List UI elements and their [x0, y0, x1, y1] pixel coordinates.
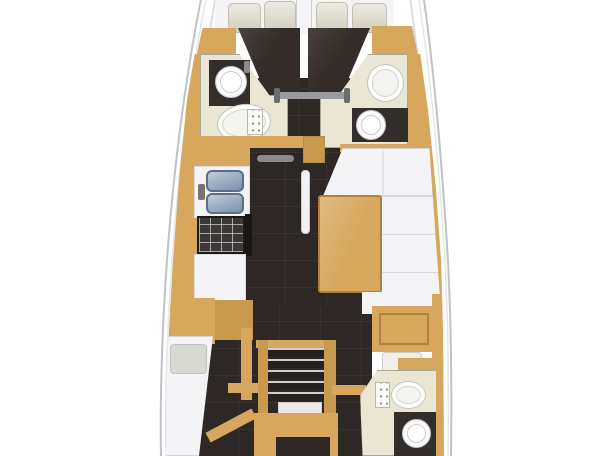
starboard-door-threshold	[332, 385, 366, 395]
companionway-step	[268, 381, 324, 390]
galley-faucet	[198, 184, 205, 200]
floor-hatch	[257, 155, 294, 162]
companionway-step	[268, 359, 324, 368]
stove-fiddle-rail	[245, 214, 252, 256]
saloon-table	[318, 195, 382, 293]
galley-counter-forward	[172, 146, 250, 168]
companionway-rail-port	[258, 340, 268, 418]
port-door-threshold	[228, 383, 262, 393]
companionway-step	[268, 348, 324, 357]
port-head-faucet	[244, 61, 250, 73]
bulkhead-cabinet	[303, 136, 325, 163]
port-head-sink	[215, 66, 247, 98]
galley-stove	[197, 216, 245, 254]
aft-berth-pillow	[170, 344, 207, 374]
galley-sink-basin	[206, 170, 244, 192]
starboard-head-toilet	[367, 64, 404, 102]
saloon-bench	[301, 170, 310, 234]
companionway-step	[268, 370, 324, 379]
aft-head-control-panel	[375, 382, 390, 408]
galley-sink-basin	[206, 193, 244, 214]
rail-end-cap	[274, 88, 280, 103]
engine-hatch	[276, 437, 330, 456]
rail-end-cap	[344, 88, 350, 103]
nav-chart-table	[372, 306, 436, 352]
aft-head-toilet	[391, 381, 426, 409]
starboard-head-sink	[356, 110, 386, 140]
companionway-step	[268, 392, 324, 401]
floor-plan-canvas	[0, 0, 608, 456]
berth-foot-rail	[277, 92, 347, 99]
port-head-control-panel	[247, 109, 263, 135]
aft-head-sink	[402, 419, 431, 448]
companionway-rail-starboard	[324, 340, 336, 418]
